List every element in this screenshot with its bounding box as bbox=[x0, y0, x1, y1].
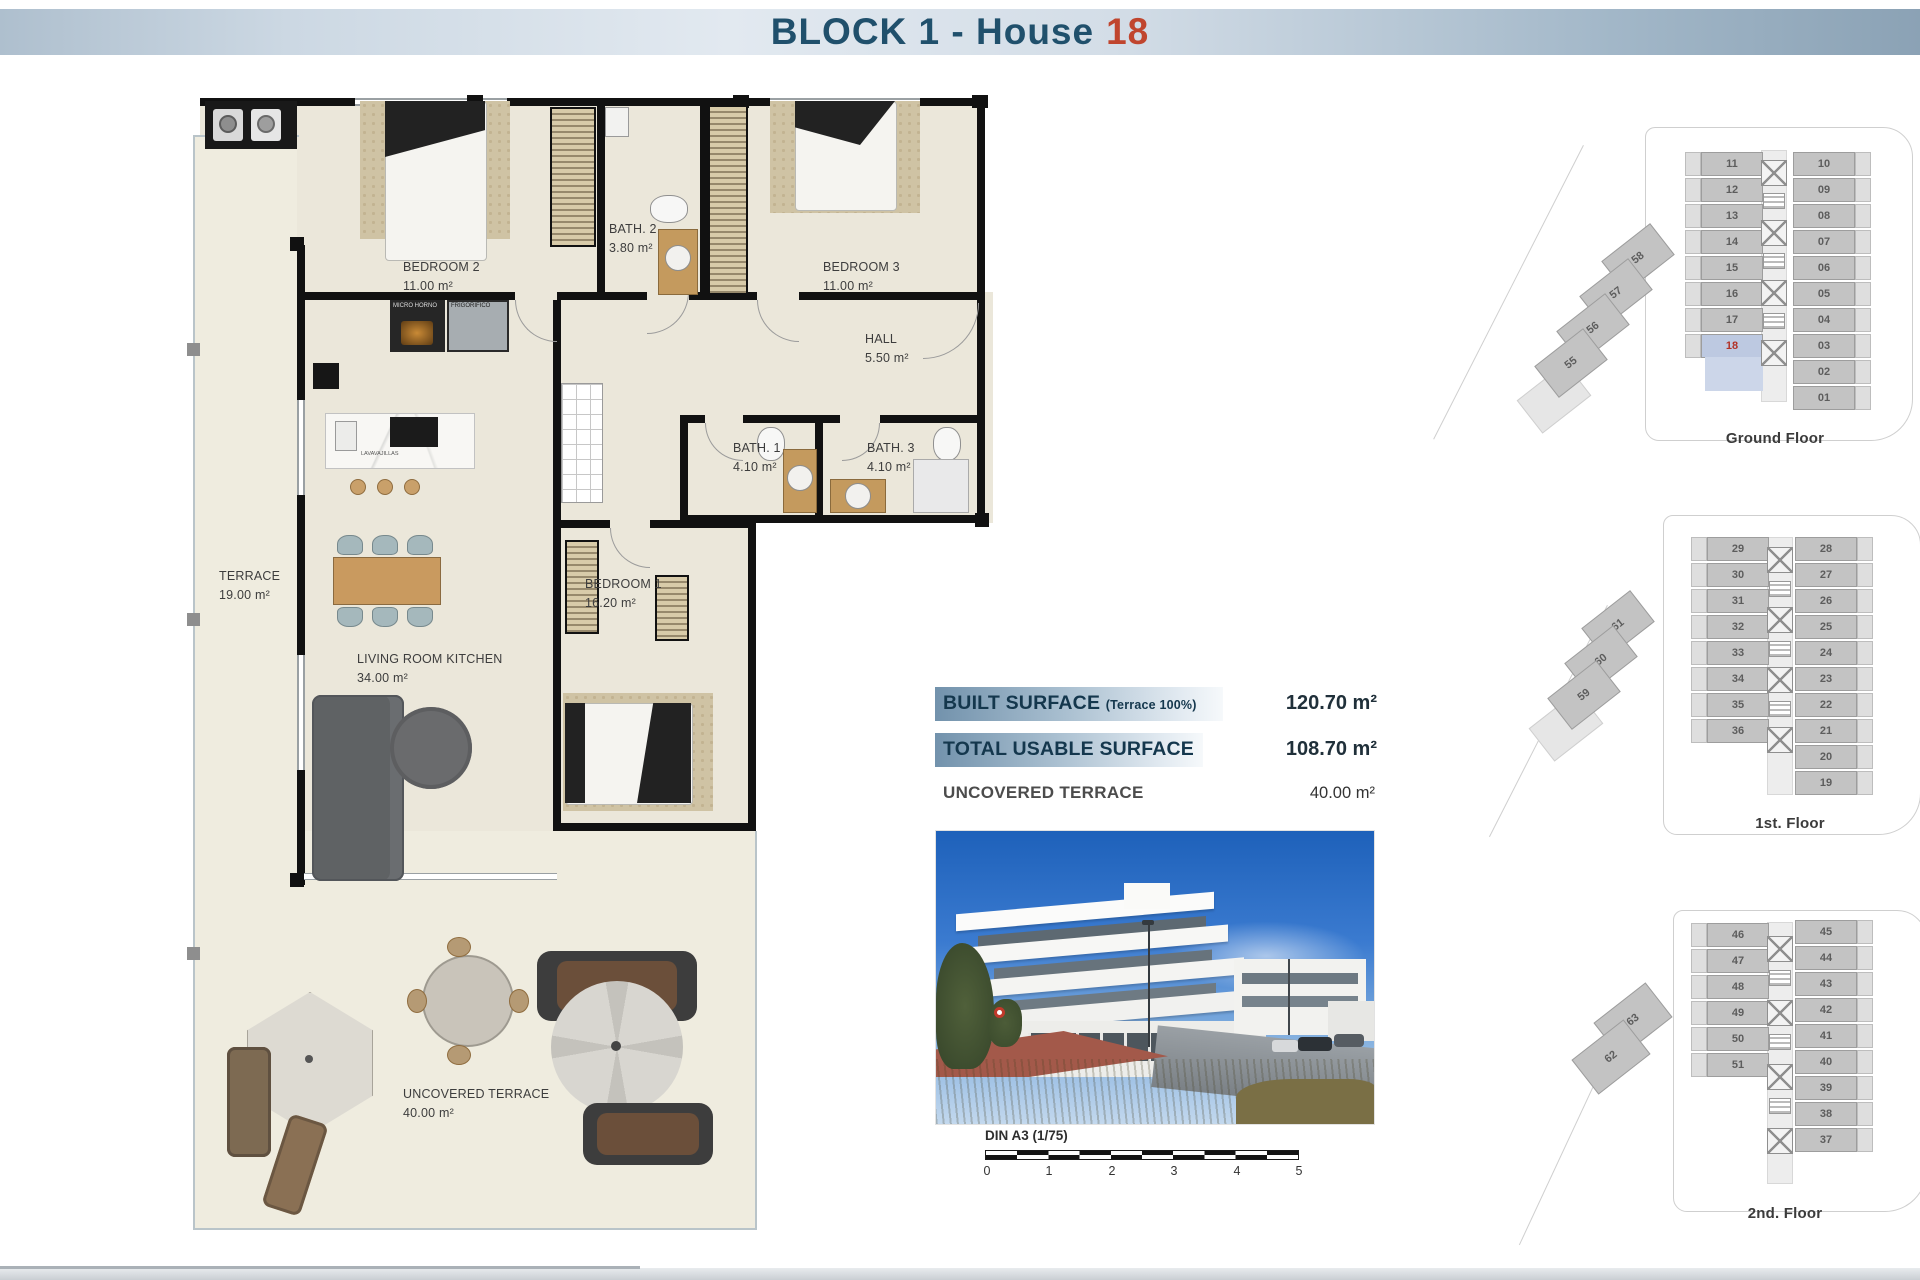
siteplan-left-column: 464748495051 bbox=[1691, 923, 1769, 1079]
photo-bush bbox=[988, 999, 1022, 1047]
terrace-boundary-right bbox=[755, 831, 757, 1230]
wall-bedroom1-right bbox=[748, 523, 756, 830]
unit-04: 04 bbox=[1793, 308, 1871, 332]
unit-29: 29 bbox=[1691, 537, 1769, 561]
page: BLOCK 1 - House18 bbox=[0, 0, 1920, 1280]
stairs-icon bbox=[1769, 1034, 1791, 1050]
unit-43: 43 bbox=[1795, 972, 1873, 996]
unit-35: 35 bbox=[1691, 693, 1769, 717]
unit-49: 49 bbox=[1691, 1001, 1769, 1025]
unit-edge bbox=[1691, 1001, 1707, 1025]
terrace-chair bbox=[447, 1045, 471, 1065]
unit-36: 36 bbox=[1691, 719, 1769, 743]
unit-edge bbox=[1857, 1128, 1873, 1152]
unit-44: 44 bbox=[1795, 946, 1873, 970]
unit-number: 26 bbox=[1795, 589, 1857, 613]
unit-41: 41 bbox=[1795, 1024, 1873, 1048]
terrace-chair bbox=[407, 989, 427, 1013]
unit-edge bbox=[1685, 282, 1701, 306]
row-label: TOTAL USABLE SURFACE bbox=[943, 738, 1194, 761]
siteplan-second-floor: 6362 464748495051 454443424140393837 2nd… bbox=[1545, 870, 1915, 1250]
unit-number: 21 bbox=[1795, 719, 1857, 743]
unit-edge bbox=[1855, 178, 1871, 202]
photo-sign bbox=[994, 1007, 1005, 1018]
row-value: 108.70 m² bbox=[1286, 738, 1377, 761]
unit-number: 12 bbox=[1701, 178, 1763, 202]
unit-number: 10 bbox=[1793, 152, 1855, 176]
unit-42: 42 bbox=[1795, 998, 1873, 1022]
lounge-chair bbox=[227, 1047, 271, 1157]
umbrella-pole bbox=[611, 1041, 621, 1051]
unit-19: 19 bbox=[1795, 771, 1873, 795]
stool bbox=[350, 479, 366, 495]
elevator-icon bbox=[1767, 936, 1793, 962]
unit-number: 29 bbox=[1707, 537, 1769, 561]
unit-number: 07 bbox=[1793, 230, 1855, 254]
stool bbox=[377, 479, 393, 495]
building-photo bbox=[935, 830, 1375, 1125]
unit-number: 34 bbox=[1707, 667, 1769, 691]
floor-plan: MICRO HORNO FRIGORIFICO LAVAVAJILLAS bbox=[185, 95, 995, 1235]
stairs-icon bbox=[1763, 253, 1785, 269]
unit-16: 16 bbox=[1685, 282, 1763, 306]
unit-08: 08 bbox=[1793, 204, 1871, 228]
unit-edge bbox=[1855, 204, 1871, 228]
unit-edge bbox=[1855, 230, 1871, 254]
room-label-bath1: BATH. 14.10 m² bbox=[733, 439, 781, 477]
elevator-icon bbox=[1767, 1128, 1793, 1154]
unit-number: 49 bbox=[1707, 1001, 1769, 1025]
photo-grass-clump bbox=[1236, 1079, 1375, 1125]
unit-38: 38 bbox=[1795, 1102, 1873, 1126]
unit-number: 05 bbox=[1793, 282, 1855, 306]
unit-number: 39 bbox=[1795, 1076, 1857, 1100]
dining-chair bbox=[407, 607, 433, 627]
unit-number: 28 bbox=[1795, 537, 1857, 561]
unit-45: 45 bbox=[1795, 920, 1873, 944]
photo-building-right-windows bbox=[1242, 973, 1358, 984]
unit-number: 46 bbox=[1707, 923, 1769, 947]
scale-tick: 4 bbox=[1234, 1164, 1241, 1178]
unit-edge bbox=[1685, 204, 1701, 228]
scale-label: DIN A3 (1/75) bbox=[985, 1128, 1068, 1143]
page-title: BLOCK 1 - House18 bbox=[771, 11, 1150, 53]
unit-number: 31 bbox=[1707, 589, 1769, 613]
unit-edge bbox=[1691, 537, 1707, 561]
header-bar: BLOCK 1 - House18 bbox=[0, 9, 1920, 55]
unit-edge bbox=[1691, 641, 1707, 665]
table-row: BUILT SURFACE (Terrace 100%) 120.70 m² bbox=[935, 687, 1377, 721]
unit-number: 27 bbox=[1795, 563, 1857, 587]
oven-glow bbox=[401, 321, 433, 345]
parasol-pole bbox=[305, 1055, 313, 1063]
unit-number: 37 bbox=[1795, 1128, 1857, 1152]
bottom-strip-accent bbox=[0, 1266, 640, 1269]
unit-06: 06 bbox=[1793, 256, 1871, 280]
unit-edge bbox=[1855, 256, 1871, 280]
closet-shelves bbox=[561, 383, 603, 503]
elevator-icon bbox=[1767, 727, 1793, 753]
terrace-boundary-bottom bbox=[193, 1228, 757, 1230]
scale-ruler bbox=[985, 1150, 1299, 1160]
photo-car bbox=[1334, 1034, 1364, 1047]
unit-15: 15 bbox=[1685, 256, 1763, 280]
unit-number: 30 bbox=[1707, 563, 1769, 587]
unit-number: 24 bbox=[1795, 641, 1857, 665]
wall-bedroom1-top2 bbox=[650, 520, 756, 528]
room-label-bath3: BATH. 34.10 m² bbox=[867, 439, 915, 477]
kitchen-sink bbox=[335, 421, 357, 451]
wall-bedroom1-bottom bbox=[553, 823, 756, 831]
unit-edge bbox=[1685, 152, 1701, 176]
unit-number: 11 bbox=[1701, 152, 1763, 176]
elevator-icon bbox=[1767, 607, 1793, 633]
dishwasher-label: LAVAVAJILLAS bbox=[361, 451, 399, 457]
wall-bedroom1-top1 bbox=[553, 520, 610, 528]
elevator-icon bbox=[1767, 1000, 1793, 1026]
title-text: BLOCK 1 - House bbox=[771, 11, 1094, 52]
stairs-icon bbox=[1769, 970, 1791, 986]
unit-edge bbox=[1855, 360, 1871, 384]
unit-number: 25 bbox=[1795, 615, 1857, 639]
unit-edge bbox=[1857, 771, 1873, 795]
terrace-chair bbox=[509, 989, 529, 1013]
unit-edge bbox=[1857, 537, 1873, 561]
unit-number: 16 bbox=[1701, 282, 1763, 306]
tv-unit bbox=[313, 363, 339, 389]
bath1-sink bbox=[787, 465, 813, 491]
unit-number: 08 bbox=[1793, 204, 1855, 228]
bath2-shower bbox=[605, 107, 629, 137]
wall-block bbox=[972, 95, 988, 108]
siteplan-core bbox=[1767, 537, 1793, 795]
unit-edge bbox=[1685, 334, 1701, 358]
pillar bbox=[187, 343, 200, 356]
unit-17: 17 bbox=[1685, 308, 1763, 332]
room-label-bath2: BATH. 23.80 m² bbox=[609, 220, 657, 258]
unit-27: 27 bbox=[1795, 563, 1873, 587]
unit-edge bbox=[1855, 282, 1871, 306]
scale-tick: 1 bbox=[1046, 1164, 1053, 1178]
room-label-terrace: TERRACE19.00 m² bbox=[219, 567, 280, 605]
dining-chair bbox=[337, 607, 363, 627]
unit-edge bbox=[1857, 1050, 1873, 1074]
elevator-icon bbox=[1761, 220, 1787, 246]
unit-edge bbox=[1857, 615, 1873, 639]
unit-02: 02 bbox=[1793, 360, 1871, 384]
unit-number: 35 bbox=[1707, 693, 1769, 717]
toilet-icon bbox=[933, 427, 961, 461]
dining-chair bbox=[372, 535, 398, 555]
photo-car bbox=[1272, 1040, 1298, 1052]
scale-tick: 3 bbox=[1171, 1164, 1178, 1178]
unit-26: 26 bbox=[1795, 589, 1873, 613]
terrace-table bbox=[422, 955, 514, 1047]
unit-edge bbox=[1685, 256, 1701, 280]
unit-03: 03 bbox=[1793, 334, 1871, 358]
toilet-icon bbox=[650, 195, 688, 223]
unit-30: 30 bbox=[1691, 563, 1769, 587]
unit-05: 05 bbox=[1793, 282, 1871, 306]
siteplan-left-column: 2930313233343536 bbox=[1691, 537, 1769, 745]
unit-37: 37 bbox=[1795, 1128, 1873, 1152]
dryer-drum-icon bbox=[257, 115, 275, 133]
elevator-icon bbox=[1761, 280, 1787, 306]
unit-edge bbox=[1855, 152, 1871, 176]
elevator-icon bbox=[1767, 1064, 1793, 1090]
bath3-shower bbox=[913, 459, 969, 513]
wall-baths-top3 bbox=[880, 415, 985, 423]
stairs-icon bbox=[1763, 313, 1785, 329]
row-value: 120.70 m² bbox=[1286, 692, 1377, 715]
unit-number: 42 bbox=[1795, 998, 1857, 1022]
unit-edge bbox=[1691, 1027, 1707, 1051]
unit-edge bbox=[1857, 998, 1873, 1022]
unit-edge bbox=[1857, 946, 1873, 970]
unit-11: 11 bbox=[1685, 152, 1763, 176]
unit-number: 17 bbox=[1701, 308, 1763, 332]
unit-edge bbox=[1857, 667, 1873, 691]
unit-edge bbox=[1685, 308, 1701, 332]
bottom-strip bbox=[0, 1268, 1920, 1280]
wall-block bbox=[290, 873, 304, 887]
dining-chair bbox=[372, 607, 398, 627]
stairs-icon bbox=[1769, 641, 1791, 657]
wall-bath1-left bbox=[680, 415, 688, 523]
terrace-chair bbox=[447, 937, 471, 957]
photo-lamp-head bbox=[1142, 920, 1154, 925]
unit-edge bbox=[1857, 1024, 1873, 1048]
unit-edge bbox=[1855, 334, 1871, 358]
unit-number: 13 bbox=[1701, 204, 1763, 228]
bath3-sink bbox=[845, 483, 871, 509]
unit-number: 33 bbox=[1707, 641, 1769, 665]
siteplan-left-column: 1112131415161718 bbox=[1685, 152, 1763, 360]
unit-number: 43 bbox=[1795, 972, 1857, 996]
unit-edge bbox=[1691, 975, 1707, 999]
unit-number: 06 bbox=[1793, 256, 1855, 280]
unit-22: 22 bbox=[1795, 693, 1873, 717]
unit-40: 40 bbox=[1795, 1050, 1873, 1074]
row-label: UNCOVERED TERRACE bbox=[943, 783, 1144, 803]
unit-number: 14 bbox=[1701, 230, 1763, 254]
unit-number: 02 bbox=[1793, 360, 1855, 384]
stairs-icon bbox=[1769, 1098, 1791, 1114]
unit-edge bbox=[1691, 1053, 1707, 1077]
wall-bath2-right bbox=[700, 105, 708, 292]
unit-edge bbox=[1691, 923, 1707, 947]
unit-number: 09 bbox=[1793, 178, 1855, 202]
unit-39: 39 bbox=[1795, 1076, 1873, 1100]
unit-28: 28 bbox=[1795, 537, 1873, 561]
highlight-extension bbox=[1705, 357, 1763, 391]
siteplan-caption: 1st. Floor bbox=[1665, 815, 1915, 832]
wall-bedroom1-left bbox=[553, 300, 561, 830]
unit-edge bbox=[1691, 949, 1707, 973]
unit-34: 34 bbox=[1691, 667, 1769, 691]
unit-12: 12 bbox=[1685, 178, 1763, 202]
row-value: 40.00 m² bbox=[1310, 784, 1375, 803]
wall-baths-top2 bbox=[743, 415, 840, 423]
room-label-living: LIVING ROOM KITCHEN34.00 m² bbox=[357, 650, 502, 688]
stairs-icon bbox=[1769, 581, 1791, 597]
living-rug bbox=[390, 707, 472, 789]
unit-47: 47 bbox=[1691, 949, 1769, 973]
elevator-icon bbox=[1761, 340, 1787, 366]
wall-bath2-left bbox=[597, 105, 605, 292]
unit-10: 10 bbox=[1793, 152, 1871, 176]
unit-edge bbox=[1691, 589, 1707, 613]
unit-09: 09 bbox=[1793, 178, 1871, 202]
pillar bbox=[187, 947, 200, 960]
unit-07: 07 bbox=[1793, 230, 1871, 254]
dining-chair bbox=[407, 535, 433, 555]
surface-table: BUILT SURFACE (Terrace 100%) 120.70 m² T… bbox=[935, 687, 1377, 805]
wall-block bbox=[290, 237, 304, 251]
siteplan-caption: Ground Floor bbox=[1635, 430, 1915, 447]
room-label-bedroom2: BEDROOM 211.00 m² bbox=[403, 258, 480, 296]
stool bbox=[404, 479, 420, 495]
room-label-bedroom1: BEDROOM 116.20 m² bbox=[585, 575, 662, 613]
unit-edge bbox=[1857, 745, 1873, 769]
unit-23: 23 bbox=[1795, 667, 1873, 691]
wall-band2 bbox=[557, 292, 647, 300]
unit-number: 40 bbox=[1795, 1050, 1857, 1074]
unit-edge bbox=[1691, 667, 1707, 691]
unit-edge bbox=[1857, 719, 1873, 743]
unit-edge bbox=[1685, 178, 1701, 202]
siteplan-caption: 2nd. Floor bbox=[1655, 1205, 1915, 1222]
unit-33: 33 bbox=[1691, 641, 1769, 665]
unit-number: 45 bbox=[1795, 920, 1857, 944]
unit-number: 03 bbox=[1793, 334, 1855, 358]
dining-table bbox=[333, 557, 441, 605]
unit-25: 25 bbox=[1795, 615, 1873, 639]
room-label-hall: HALL5.50 m² bbox=[865, 330, 909, 368]
unit-number: 48 bbox=[1707, 975, 1769, 999]
unit-number: 38 bbox=[1795, 1102, 1857, 1126]
washer-drum-icon bbox=[219, 115, 237, 133]
unit-number: 20 bbox=[1795, 745, 1857, 769]
stairs-icon bbox=[1769, 701, 1791, 717]
unit-48: 48 bbox=[1691, 975, 1769, 999]
wardrobe bbox=[550, 107, 596, 247]
table-row: UNCOVERED TERRACE 40.00 m² bbox=[935, 779, 1377, 813]
window-living-west1 bbox=[297, 400, 305, 495]
unit-21: 21 bbox=[1795, 719, 1873, 743]
unit-18: 18 bbox=[1685, 334, 1763, 358]
bath2-sink bbox=[665, 245, 691, 271]
house-number: 18 bbox=[1106, 11, 1149, 52]
unit-number: 32 bbox=[1707, 615, 1769, 639]
photo-car bbox=[1298, 1037, 1332, 1051]
room-label-bedroom3: BEDROOM 311.00 m² bbox=[823, 258, 900, 296]
scale-tick: 0 bbox=[984, 1164, 991, 1178]
scale-tick: 2 bbox=[1109, 1164, 1116, 1178]
unit-13: 13 bbox=[1685, 204, 1763, 228]
unit-number: 44 bbox=[1795, 946, 1857, 970]
unit-edge bbox=[1857, 563, 1873, 587]
unit-number: 01 bbox=[1793, 386, 1855, 410]
unit-46: 46 bbox=[1691, 923, 1769, 947]
unit-edge bbox=[1855, 386, 1871, 410]
unit-01: 01 bbox=[1793, 386, 1871, 410]
stairs-icon bbox=[1763, 193, 1785, 209]
unit-20: 20 bbox=[1795, 745, 1873, 769]
unit-24: 24 bbox=[1795, 641, 1873, 665]
unit-32: 32 bbox=[1691, 615, 1769, 639]
siteplan-ground-floor: 58575655 1112131415161718 10090807060504… bbox=[1545, 105, 1915, 470]
elevator-icon bbox=[1767, 667, 1793, 693]
elevator-icon bbox=[1761, 160, 1787, 186]
wall-left-inner bbox=[297, 245, 305, 885]
unit-edge bbox=[1857, 693, 1873, 717]
unit-edge bbox=[1857, 1076, 1873, 1100]
oven-label: MICRO HORNO bbox=[393, 303, 437, 310]
scale-ruler-row bbox=[986, 1155, 1298, 1159]
unit-edge bbox=[1857, 920, 1873, 944]
scale-bar: DIN A3 (1/75) 0 1 2 3 4 5 bbox=[985, 1128, 1315, 1180]
unit-31: 31 bbox=[1691, 589, 1769, 613]
unit-51: 51 bbox=[1691, 1053, 1769, 1077]
unit-edge bbox=[1857, 589, 1873, 613]
wall-block bbox=[975, 513, 989, 527]
unit-edge bbox=[1691, 563, 1707, 587]
unit-number: 23 bbox=[1795, 667, 1857, 691]
unit-number: 51 bbox=[1707, 1053, 1769, 1077]
bedroom1-headboard bbox=[565, 703, 585, 803]
siteplan-right-column: 28272625242322212019 bbox=[1795, 537, 1873, 797]
table-row: TOTAL USABLE SURFACE 108.70 m² bbox=[935, 733, 1377, 767]
elevator-icon bbox=[1767, 547, 1793, 573]
unit-number: 18 bbox=[1701, 334, 1763, 358]
unit-number: 22 bbox=[1795, 693, 1857, 717]
unit-edge bbox=[1857, 972, 1873, 996]
siteplan-right-column: 454443424140393837 bbox=[1795, 920, 1873, 1154]
scale-tick: 5 bbox=[1296, 1164, 1303, 1178]
dining-chair bbox=[337, 535, 363, 555]
unit-edge bbox=[1857, 641, 1873, 665]
unit-edge bbox=[1691, 719, 1707, 743]
siteplan-first-floor: 616059 2930313233343536 2827262524232221… bbox=[1545, 505, 1915, 865]
photo-lamp-post bbox=[1288, 959, 1290, 1035]
fridge-label: FRIGORIFICO bbox=[451, 303, 490, 310]
siteplan-right-column: 10090807060504030201 bbox=[1793, 152, 1871, 412]
unit-number: 19 bbox=[1795, 771, 1857, 795]
terrace-boundary-left bbox=[193, 135, 195, 1230]
cooktop bbox=[390, 417, 438, 447]
unit-50: 50 bbox=[1691, 1027, 1769, 1051]
unit-number: 47 bbox=[1707, 949, 1769, 973]
unit-number: 04 bbox=[1793, 308, 1855, 332]
outdoor-sofa-cushion bbox=[597, 1113, 699, 1155]
window-living-west2 bbox=[297, 655, 305, 770]
wardrobe bbox=[708, 105, 748, 295]
unit-edge bbox=[1691, 615, 1707, 639]
unit-edge bbox=[1691, 693, 1707, 717]
unit-number: 41 bbox=[1795, 1024, 1857, 1048]
unit-number: 36 bbox=[1707, 719, 1769, 743]
unit-edge bbox=[1685, 230, 1701, 254]
unit-number: 50 bbox=[1707, 1027, 1769, 1051]
row-label: BUILT SURFACE (Terrace 100%) bbox=[943, 692, 1197, 715]
unit-number: 15 bbox=[1701, 256, 1763, 280]
unit-edge bbox=[1857, 1102, 1873, 1126]
unit-14: 14 bbox=[1685, 230, 1763, 254]
photo-lamp-post bbox=[1148, 923, 1150, 1047]
unit-edge bbox=[1855, 308, 1871, 332]
pillar bbox=[187, 613, 200, 626]
